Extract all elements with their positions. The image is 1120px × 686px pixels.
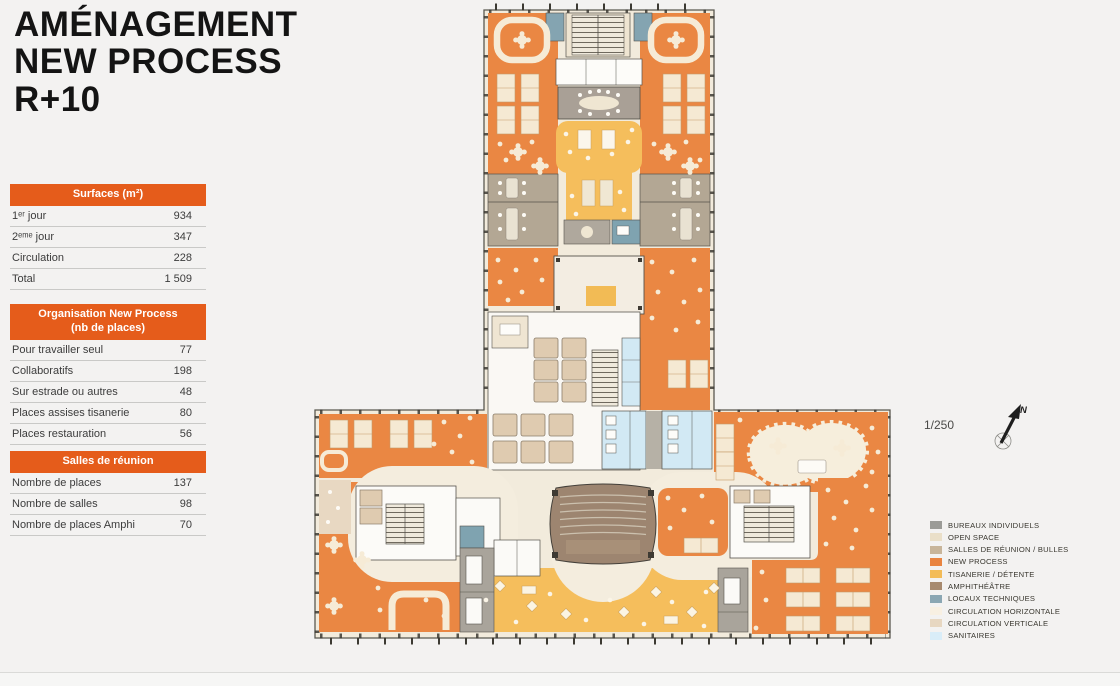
header-line-2: (nb de places) [12,322,204,336]
row-label: 1ᵉʳ jour [12,210,46,222]
legend-swatch [930,558,942,566]
table-row: Collaboratifs 198 [10,361,206,382]
table-row: Places assises tisanerie 80 [10,403,206,424]
sanitaires-room [622,338,640,406]
legend-item: CIRCULATION HORIZONTALE [930,607,1068,615]
legend-item: TISANERIE / DÉTENTE [930,570,1068,578]
legend-item: SALLES DE RÉUNION / BULLES [930,546,1068,554]
north-arrow: N [995,404,1028,449]
legend-label: CIRCULATION VERTICALE [948,619,1048,628]
stairs [592,350,618,406]
legend-item: BUREAUX INDIVIDUELS [930,521,1068,529]
legend-swatch [930,570,942,578]
legend-label: SALLES DE RÉUNION / BULLES [948,545,1068,554]
surfaces-table-header: Surfaces (m²) [10,184,206,206]
legend-item: NEW PROCESS [930,558,1068,566]
legend: BUREAUX INDIVIDUELS OPEN SPACE SALLES DE… [930,521,1068,644]
row-value: 98 [180,498,204,510]
legend-swatch [930,546,942,554]
legend-swatch [930,595,942,603]
legend-item: LOCAUX TECHNIQUES [930,595,1068,603]
legend-item: CIRCULATION VERTICALE [930,619,1068,627]
row-value: 80 [180,407,204,419]
title-line-1: AMÉNAGEMENT [14,6,298,43]
legend-label: OPEN SPACE [948,533,999,542]
tower-wing [488,13,710,470]
legend-swatch [930,582,942,590]
sanitaires-block [602,411,712,469]
circulation-verticale [319,480,351,534]
right-core [730,486,810,558]
row-label: Circulation [12,252,64,264]
row-label: Nombre de places Amphi [12,519,135,531]
table-row: Sur estrade ou autres 48 [10,382,206,403]
legend-label: NEW PROCESS [948,557,1008,566]
legend-label: BUREAUX INDIVIDUELS [948,521,1039,530]
legend-item: AMPHITHÉÂTRE [930,582,1068,590]
legend-swatch [930,521,942,529]
legend-label: CIRCULATION HORIZONTALE [948,607,1060,616]
tisanerie-lounge [750,423,866,485]
legend-swatch [930,619,942,627]
row-value: 56 [180,428,204,440]
row-value: 228 [174,252,204,264]
slide: 1/250 N AMÉNAGEMENT NEW PROCESS R+10 Sur… [0,0,1120,686]
table-row: Nombre de places 137 [10,473,206,494]
legend-label: SANITAIRES [948,631,995,640]
page-title: AMÉNAGEMENT NEW PROCESS R+10 [14,6,298,118]
salles-table: Salles de réunion Nombre de places 137 N… [10,451,206,536]
row-value: 70 [180,519,204,531]
locaux-techniques-room [460,526,484,548]
row-value: 77 [180,344,204,356]
row-label: Places assises tisanerie [12,407,129,419]
row-value: 1 509 [164,273,204,285]
slide-footer-strip [0,672,1120,686]
table-row: 2ᵉᵐᵉ jour 347 [10,227,206,248]
table-row: Places restauration 56 [10,424,206,445]
amphitheatre [550,484,656,564]
legend-label: TISANERIE / DÉTENTE [948,570,1035,579]
row-label: Pour travailler seul [12,344,103,356]
legend-swatch [930,632,942,640]
row-label: Sur estrade ou autres [12,386,118,398]
north-label: N [1020,405,1028,416]
organisation-table: Organisation New Process (nb de places) … [10,304,206,445]
table-row: Circulation 228 [10,248,206,269]
row-label: Total [12,273,35,285]
bottom-wing [319,411,888,634]
row-label: 2ᵉᵐᵉ jour [12,231,54,243]
scale-label: 1/250 [924,418,954,432]
table-row: Nombre de salles 98 [10,494,206,515]
row-label: Nombre de salles [12,498,98,510]
table-row: Nombre de places Amphi 70 [10,515,206,536]
legend-item: SANITAIRES [930,632,1068,640]
organisation-table-header: Organisation New Process (nb de places) [10,304,206,340]
table-row: Pour travailler seul 77 [10,340,206,361]
legend-label: AMPHITHÉÂTRE [948,582,1011,591]
legend-item: OPEN SPACE [930,533,1068,541]
legend-swatch [930,533,942,541]
row-value: 198 [174,365,204,377]
table-row: Total 1 509 [10,269,206,290]
row-value: 934 [174,210,204,222]
row-value: 137 [174,477,204,489]
row-value: 347 [174,231,204,243]
row-label: Nombre de places [12,477,101,489]
row-value: 48 [180,386,204,398]
legend-swatch [930,607,942,615]
salles-table-header: Salles de réunion [10,451,206,473]
row-label: Collaboratifs [12,365,73,377]
row-label: Places restauration [12,428,106,440]
title-line-3: R+10 [14,81,298,118]
legend-label: LOCAUX TECHNIQUES [948,594,1035,603]
title-line-2: NEW PROCESS [14,43,298,80]
header-line-1: Organisation New Process [12,308,204,322]
surfaces-table: Surfaces (m²) 1ᵉʳ jour 934 2ᵉᵐᵉ jour 347… [10,184,206,290]
table-row: 1ᵉʳ jour 934 [10,206,206,227]
